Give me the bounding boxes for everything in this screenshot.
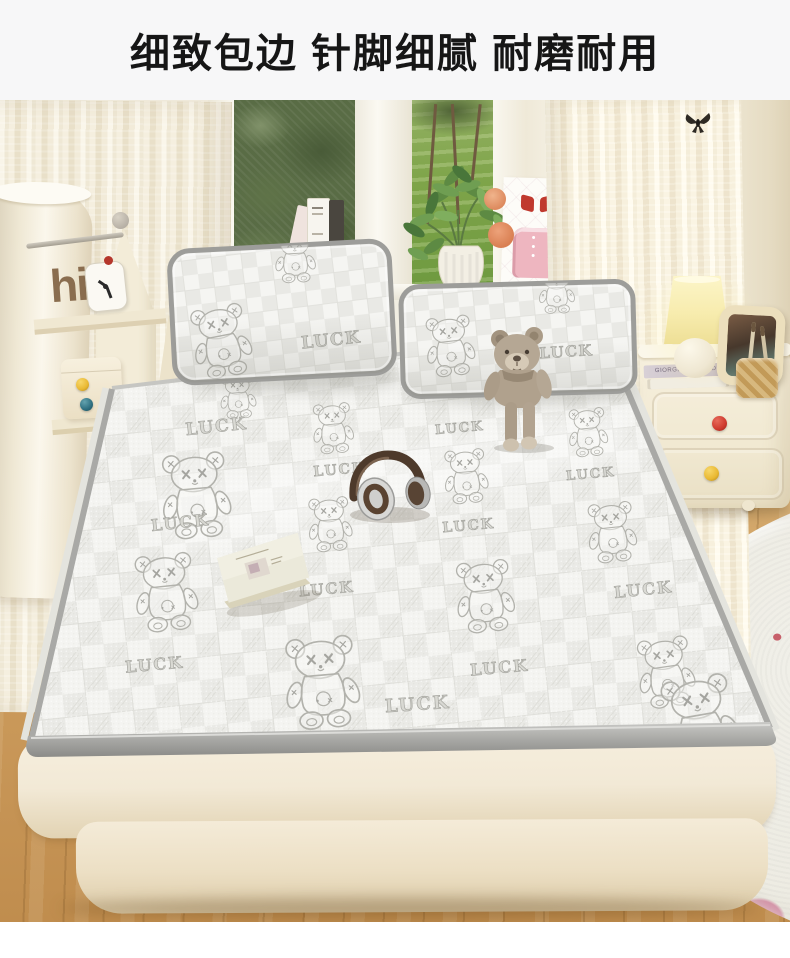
nightstand-foot (742, 500, 755, 511)
bedroom-photo: D Ribbon GIORGIO MORANDI (0, 100, 790, 922)
drawer-knob-red (712, 416, 727, 431)
alarm-clock (84, 260, 129, 313)
mini-drawer-box (60, 356, 123, 419)
teddy-bear (478, 326, 570, 454)
shelf-finial-ball (112, 212, 129, 229)
clock-minute-hand (105, 286, 112, 299)
butterfly-silhouette (684, 110, 712, 136)
shelf-word-hi: hi (48, 257, 89, 313)
pillow-left: LUCK (164, 236, 399, 388)
product-page: 细致包边 针脚细腻 耐磨耐用 (0, 0, 790, 958)
book-on-bed (210, 530, 326, 622)
clock-hour-hand (98, 280, 107, 287)
pen-cup (736, 358, 778, 398)
bed-floor-shadow (60, 898, 760, 918)
table-lamp-base (674, 338, 716, 378)
drawer-knob-yellow (704, 466, 719, 481)
butterfly-body (696, 119, 700, 127)
peach-rose (488, 222, 514, 248)
banner: 细致包边 针脚细腻 耐磨耐用 (0, 0, 790, 100)
peach-rose (484, 188, 506, 210)
nightstand-drawer-bottom (654, 448, 784, 500)
page-title: 细致包边 针脚细腻 耐磨耐用 (130, 21, 660, 79)
red-ornament (104, 256, 113, 265)
nightstand-foot (656, 502, 669, 513)
box-knob-yellow (76, 378, 89, 391)
headphone-cup-right (403, 475, 432, 511)
box-knob-teal (80, 398, 93, 411)
headphones (340, 445, 436, 527)
